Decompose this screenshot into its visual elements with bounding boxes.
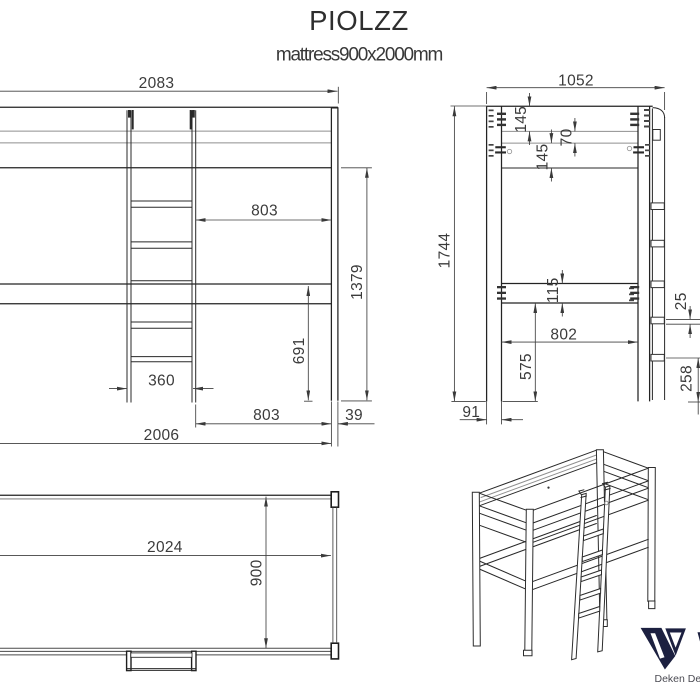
svg-text:691: 691	[291, 338, 308, 365]
svg-text:1052: 1052	[558, 72, 594, 89]
svg-text:803: 803	[253, 407, 280, 424]
svg-text:mattress900x2000mm: mattress900x2000mm	[276, 45, 443, 66]
svg-text:PIOLZZ: PIOLZZ	[309, 5, 409, 36]
svg-text:803: 803	[251, 203, 278, 220]
svg-text:360: 360	[148, 372, 175, 389]
svg-text:1379: 1379	[349, 264, 366, 300]
svg-text:1744: 1744	[436, 233, 453, 269]
svg-text:2083: 2083	[139, 75, 175, 92]
svg-text:25: 25	[673, 292, 690, 310]
svg-text:575: 575	[518, 353, 535, 380]
svg-text:145: 145	[534, 144, 551, 171]
svg-text:91: 91	[462, 404, 480, 421]
svg-text:2024: 2024	[147, 539, 183, 556]
svg-text:70: 70	[559, 128, 576, 146]
svg-text:258: 258	[679, 365, 696, 392]
svg-text:39: 39	[345, 407, 363, 424]
svg-text:900: 900	[249, 559, 266, 586]
svg-text:145: 145	[513, 106, 530, 133]
svg-text:802: 802	[550, 327, 577, 344]
svg-text:115: 115	[545, 277, 562, 303]
svg-text:Deken Debe: Deken Debe	[655, 673, 700, 685]
svg-text:2006: 2006	[144, 427, 180, 444]
